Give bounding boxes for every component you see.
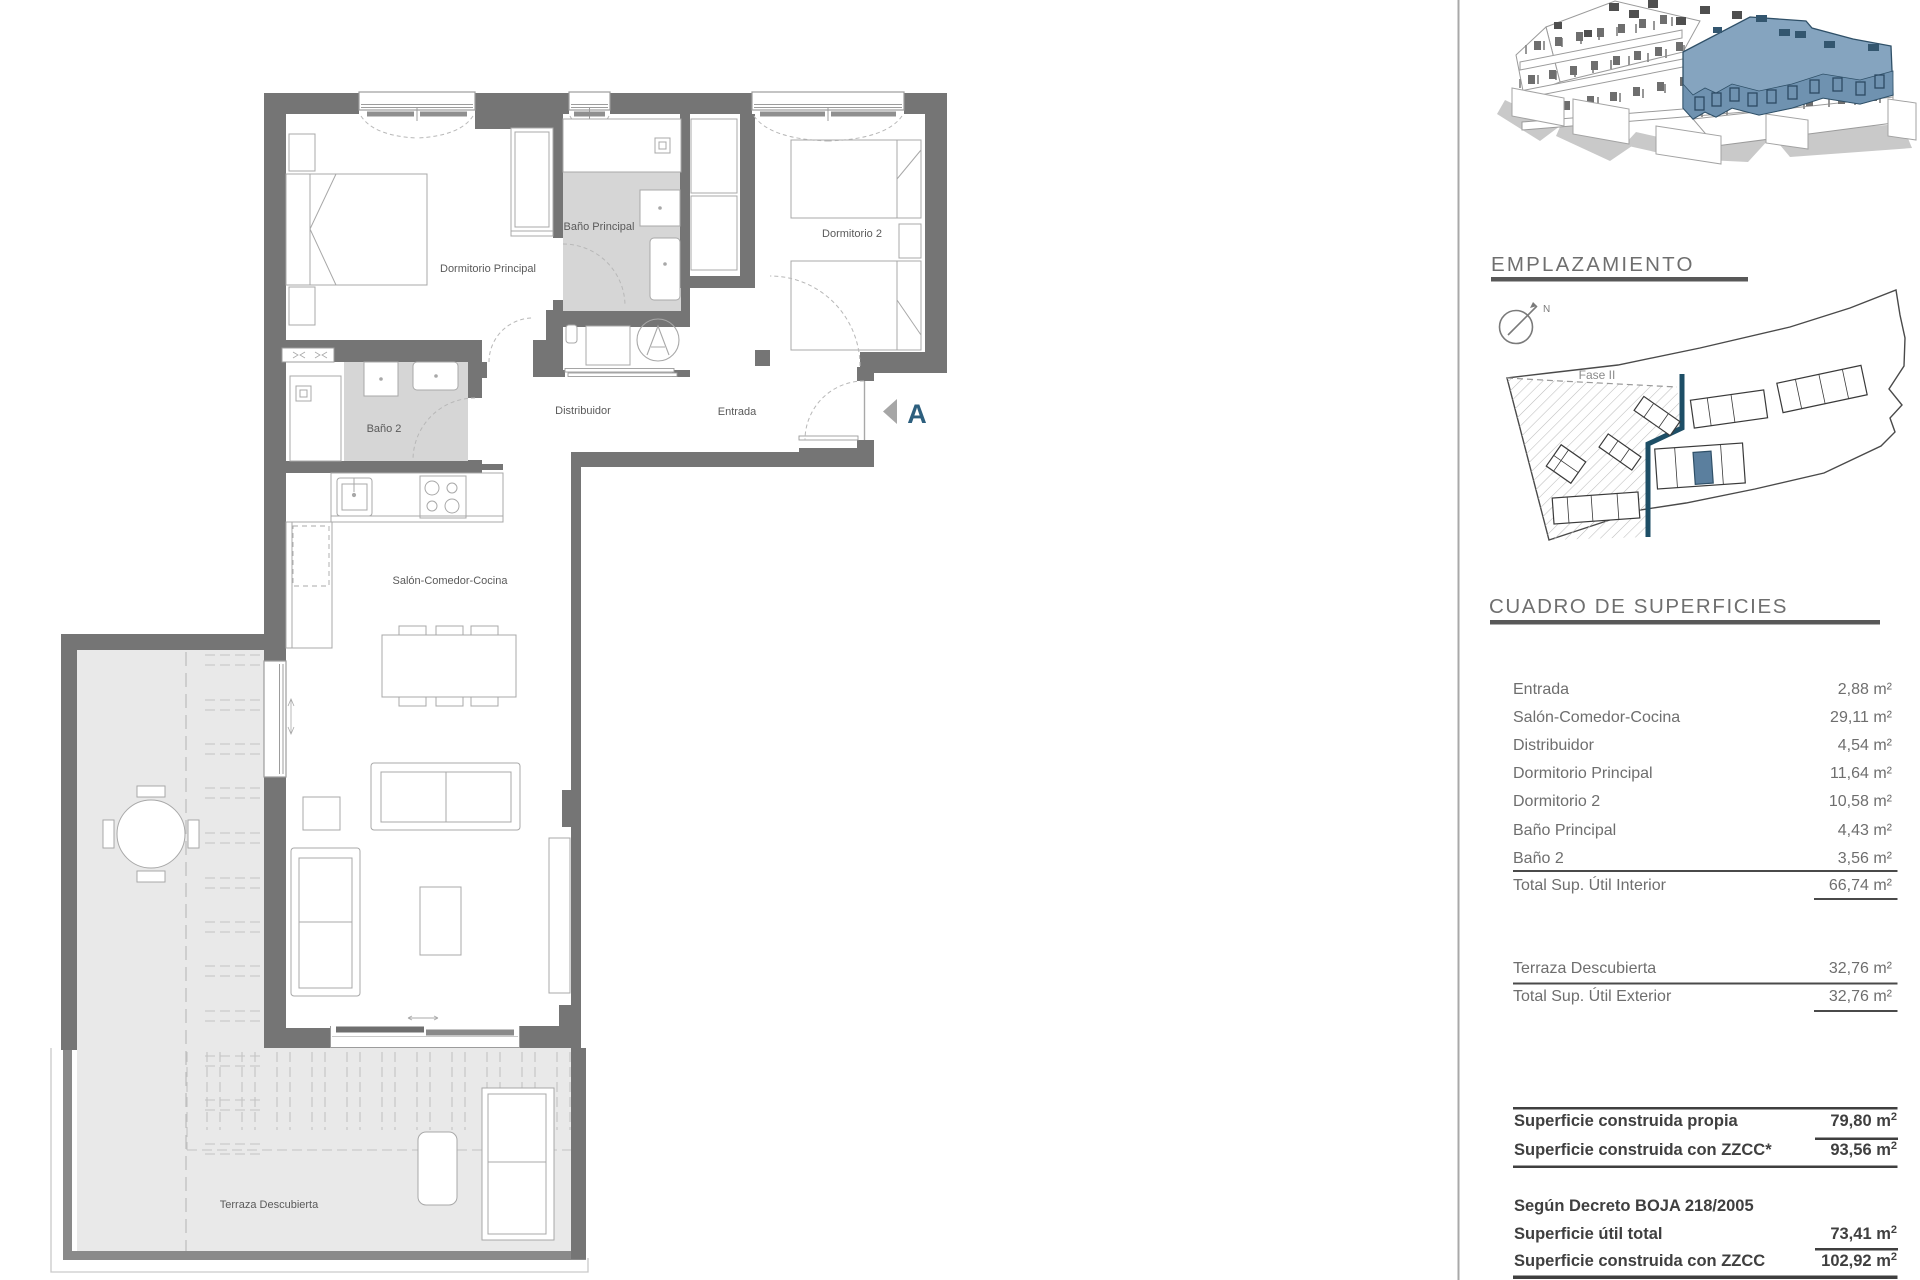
svg-text:A: A xyxy=(907,399,927,429)
svg-text:Entrada: Entrada xyxy=(1513,681,1569,698)
svg-text:Dormitorio Principal: Dormitorio Principal xyxy=(1513,765,1653,782)
svg-text:Fase II: Fase II xyxy=(1579,368,1616,382)
svg-text:29,11 m²: 29,11 m² xyxy=(1830,709,1893,726)
svg-text:Baño Principal: Baño Principal xyxy=(1513,822,1616,839)
svg-text:66,74 m²: 66,74 m² xyxy=(1829,877,1893,894)
svg-text:93,56 m2: 93,56 m2 xyxy=(1830,1140,1897,1159)
svg-text:Superficie construida propia: Superficie construida propia xyxy=(1514,1112,1739,1130)
svg-text:Distribuidor: Distribuidor xyxy=(1513,737,1595,754)
svg-text:Dormitorio 2: Dormitorio 2 xyxy=(822,228,882,240)
svg-text:Superficie construida con ZZCC: Superficie construida con ZZCC* xyxy=(1514,1141,1772,1159)
svg-text:79,80 m2: 79,80 m2 xyxy=(1830,1111,1897,1130)
svg-text:Salón-Comedor-Cocina: Salón-Comedor-Cocina xyxy=(1513,709,1680,726)
svg-text:3,56 m²: 3,56 m² xyxy=(1838,850,1893,867)
svg-text:11,64 m²: 11,64 m² xyxy=(1830,765,1893,782)
svg-text:Baño Principal: Baño Principal xyxy=(564,221,635,233)
svg-text:102,92 m2: 102,92 m2 xyxy=(1821,1251,1897,1270)
svg-text:32,76 m²: 32,76 m² xyxy=(1829,960,1893,977)
svg-text:Total Sup. Útil Interior: Total Sup. Útil Interior xyxy=(1513,875,1667,894)
svg-text:Entrada: Entrada xyxy=(718,406,757,418)
svg-text:CUADRO DE SUPERFICIES: CUADRO DE SUPERFICIES xyxy=(1489,595,1788,618)
svg-text:Baño 2: Baño 2 xyxy=(367,423,402,435)
svg-text:4,54 m²: 4,54 m² xyxy=(1838,737,1893,754)
svg-text:Según Decreto BOJA 218/2005: Según Decreto BOJA 218/2005 xyxy=(1514,1197,1754,1215)
svg-text:Dormitorio 2: Dormitorio 2 xyxy=(1513,793,1600,810)
svg-text:EMPLAZAMIENTO: EMPLAZAMIENTO xyxy=(1491,253,1695,276)
svg-text:Salón-Comedor-Cocina: Salón-Comedor-Cocina xyxy=(393,575,509,587)
svg-text:32,76 m²: 32,76 m² xyxy=(1829,988,1893,1005)
svg-text:Superficie útil total: Superficie útil total xyxy=(1514,1225,1663,1243)
svg-text:Superficie construida con ZZCC: Superficie construida con ZZCC xyxy=(1514,1252,1765,1270)
svg-text:Dormitorio Principal: Dormitorio Principal xyxy=(440,263,536,275)
svg-text:4,43 m²: 4,43 m² xyxy=(1838,822,1893,839)
svg-text:Distribuidor: Distribuidor xyxy=(555,405,611,417)
svg-text:N: N xyxy=(1543,304,1550,315)
svg-text:Terraza Descubierta: Terraza Descubierta xyxy=(1513,960,1656,977)
svg-text:2,88 m²: 2,88 m² xyxy=(1838,681,1893,698)
svg-text:Terraza Descubierta: Terraza Descubierta xyxy=(220,1199,319,1211)
svg-text:73,41 m2: 73,41 m2 xyxy=(1830,1224,1897,1243)
svg-text:Total Sup. Útil Exterior: Total Sup. Útil Exterior xyxy=(1513,986,1672,1005)
svg-text:10,58 m²: 10,58 m² xyxy=(1829,793,1893,810)
svg-text:Baño 2: Baño 2 xyxy=(1513,850,1564,867)
